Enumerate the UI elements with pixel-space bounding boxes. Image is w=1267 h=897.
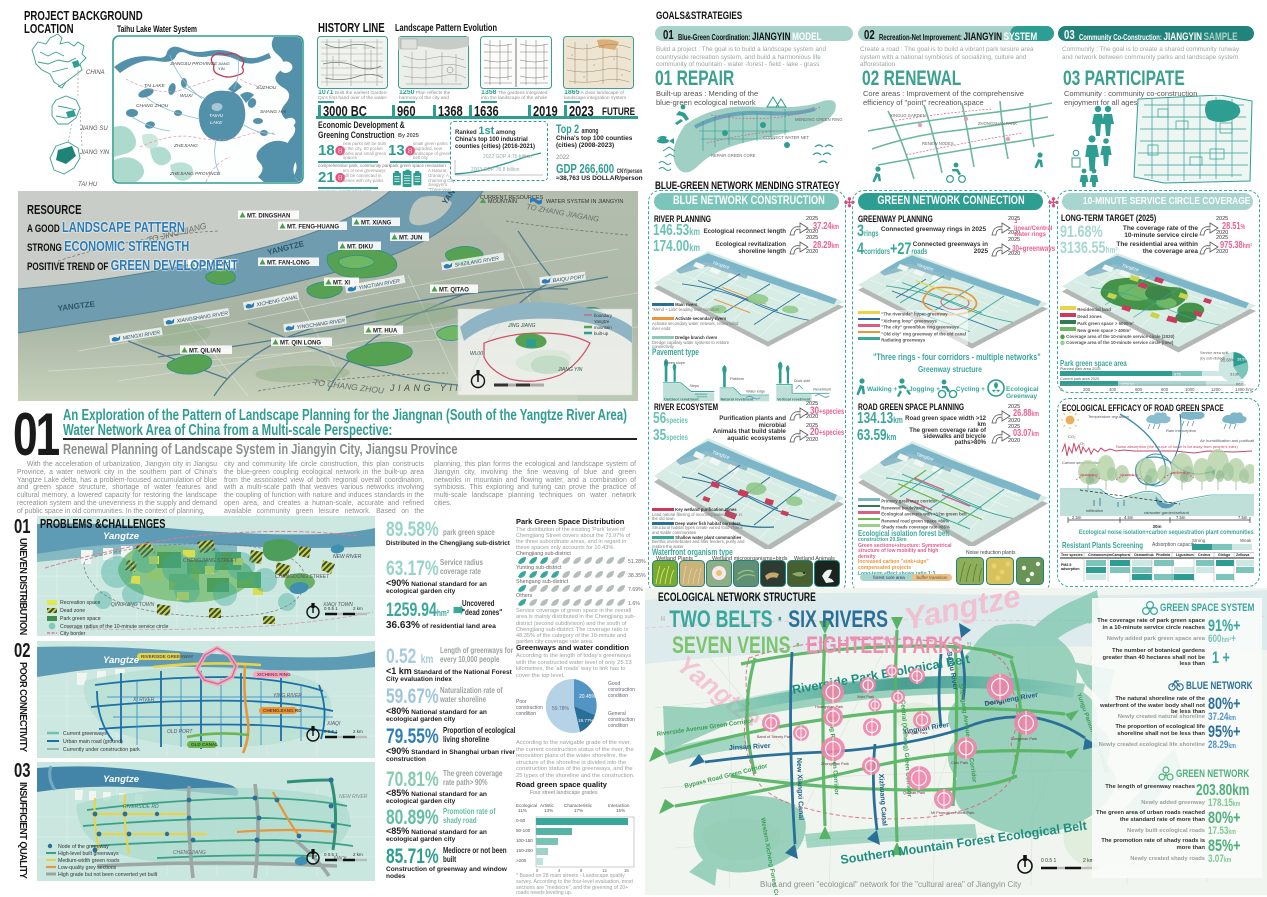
svg-text:Zhongshan Park: Zhongshan Park bbox=[821, 762, 849, 766]
svg-text:Noise reduction plants: Noise reduction plants bbox=[966, 550, 1016, 556]
svg-text:Mt Promotion Forest Park: Mt Promotion Forest Park bbox=[931, 811, 974, 815]
svg-text:Recreation space: Recreation space bbox=[60, 600, 100, 606]
svg-text:Camphora: Camphora bbox=[1112, 553, 1131, 557]
svg-text:Yangtze: Yangtze bbox=[103, 655, 140, 666]
svg-text:MT. JUN: MT. JUN bbox=[399, 236, 422, 242]
svg-text:Ginkgo: Ginkgo bbox=[1218, 553, 1231, 557]
svg-text:Revetment: Revetment bbox=[813, 388, 831, 392]
svg-text:XI RIVER: XI RIVER bbox=[132, 697, 155, 703]
svg-text:MOUNTAIN: MOUNTAIN bbox=[488, 199, 517, 205]
svg-text:Qushan Park: Qushan Park bbox=[903, 791, 925, 795]
svg-text:YING RIVER: YING RIVER bbox=[273, 693, 302, 699]
svg-text:2.5m: 2.5m bbox=[1072, 515, 1082, 520]
svg-text:Node of the greenway: Node of the greenway bbox=[58, 844, 109, 850]
svg-text:Band of Twenty Park: Band of Twenty Park bbox=[757, 735, 792, 739]
svg-text:800: 800 bbox=[1161, 387, 1169, 392]
svg-text:0-50: 0-50 bbox=[516, 818, 526, 823]
svg-text:Jogging +: Jogging + bbox=[909, 386, 940, 393]
svg-text:7.5m: 7.5m bbox=[1238, 515, 1248, 520]
svg-text:ZHEJIANG: ZHEJIANG bbox=[173, 143, 198, 149]
svg-text:Low-quality grey sections: Low-quality grey sections bbox=[58, 865, 117, 871]
svg-text:0 0.5 1: 0 0.5 1 bbox=[324, 606, 338, 611]
svg-text:Civic Park: Civic Park bbox=[951, 761, 968, 765]
svg-text:OLD CANAL: OLD CANAL bbox=[191, 742, 218, 747]
svg-text:Natural revetment: Natural revetment bbox=[720, 396, 754, 401]
svg-text:Currently under construction p: Currently under construction park bbox=[63, 747, 140, 753]
svg-text:Current greenways: Current greenways bbox=[63, 731, 107, 737]
svg-text:17%: 17% bbox=[574, 808, 583, 813]
svg-text:Noise absorption (the source o: Noise absorption (the source of noise is… bbox=[1116, 444, 1238, 449]
svg-text:Huangshan Park: Huangshan Park bbox=[815, 705, 843, 709]
svg-text:0: 0 bbox=[1060, 387, 1063, 392]
svg-text:Dead zone: Dead zone bbox=[60, 608, 85, 614]
svg-text:SUZHOU: SUZHOU bbox=[256, 85, 277, 91]
svg-text:MT. HUA: MT. HUA bbox=[373, 329, 398, 335]
svg-text:19.77%: 19.77% bbox=[578, 718, 594, 723]
svg-text:QINGYANG TOWN: QINGYANG TOWN bbox=[111, 602, 155, 608]
svg-text:built-up: built-up bbox=[594, 331, 609, 336]
svg-text:CHENGJIANG: CHENGJIANG bbox=[173, 850, 206, 856]
svg-text:JIANG SU: JIANG SU bbox=[79, 126, 108, 132]
svg-text:Yunting sub-district: Yunting sub-district bbox=[516, 565, 562, 571]
svg-text:RIVERSIDE GREENWAY: RIVERSIDE GREENWAY bbox=[141, 654, 193, 659]
svg-text:3136: 3136 bbox=[1230, 371, 1240, 376]
svg-text:JIANG YIN: JIANG YIN bbox=[557, 367, 583, 373]
svg-text:Coverage radius of the 10-minu: Coverage radius of the 10-minute service… bbox=[60, 624, 169, 630]
svg-text:mountain: mountain bbox=[594, 325, 612, 330]
svg-text:11%: 11% bbox=[518, 808, 527, 813]
svg-text:>200: >200 bbox=[516, 858, 527, 863]
svg-text:infiltration: infiltration bbox=[1086, 508, 1103, 513]
svg-text:Service area split: Service area split bbox=[1200, 351, 1228, 355]
svg-text:Xishi Park: Xishi Park bbox=[857, 695, 874, 699]
svg-text:13%: 13% bbox=[544, 808, 553, 813]
svg-text:O₂: O₂ bbox=[1080, 441, 1085, 446]
svg-text:High-level built greenways: High-level built greenways bbox=[58, 851, 119, 857]
svg-text:Cinnamomum: Cinnamomum bbox=[1088, 553, 1112, 557]
svg-text:City border: City border bbox=[60, 631, 86, 636]
svg-text:2 km: 2 km bbox=[353, 729, 363, 734]
svg-text:XIAQI: XIAQI bbox=[326, 721, 341, 727]
svg-text:MENDING GREEN RING: MENDING GREEN RING bbox=[795, 117, 842, 122]
svg-text:Zelkova: Zelkova bbox=[1236, 553, 1250, 557]
svg-text:Outdoor revetment: Outdoor revetment bbox=[664, 396, 700, 401]
svg-text:Walking +: Walking + bbox=[867, 386, 897, 393]
svg-text:Current park area 2020: Current park area 2020 bbox=[1060, 377, 1099, 381]
svg-text:JING JIANG: JING JIANG bbox=[507, 323, 536, 329]
svg-text:ZHEJIANG PROVINCE: ZHEJIANG PROVINCE bbox=[169, 171, 221, 177]
svg-text:Yangtze: Yangtze bbox=[103, 774, 140, 785]
svg-text:Green slope: Green slope bbox=[665, 361, 685, 365]
svg-text:condition: condition bbox=[608, 693, 628, 699]
svg-text:⌂: ⌂ bbox=[583, 75, 585, 79]
svg-text:51.28%: 51.28% bbox=[628, 559, 646, 565]
svg-text:0 0.5 1: 0 0.5 1 bbox=[324, 729, 338, 734]
svg-text:TAIHU: TAIHU bbox=[209, 113, 224, 119]
svg-text:(by sub-district): (by sub-district) bbox=[1200, 357, 1225, 361]
svg-text:CHENGJIANG STREET: CHENGJIANG STREET bbox=[183, 558, 238, 564]
svg-text:Photinia: Photinia bbox=[1156, 553, 1171, 557]
svg-text:400: 400 bbox=[1109, 387, 1117, 392]
svg-text:⌂: ⌂ bbox=[621, 73, 623, 77]
svg-text:0 0.5 1: 0 0.5 1 bbox=[324, 852, 338, 857]
svg-text:Dongshan Park: Dongshan Park bbox=[1011, 737, 1037, 741]
svg-text:2 km: 2 km bbox=[353, 606, 363, 611]
svg-text:Cedrus: Cedrus bbox=[1198, 553, 1210, 557]
svg-text:MT. QIN LONG: MT. QIN LONG bbox=[280, 341, 321, 347]
svg-text:Tree species: Tree species bbox=[1061, 553, 1083, 557]
svg-text:absorption: absorption bbox=[1080, 473, 1098, 477]
svg-text:ZHONGSHAN PARK: ZHONGSHAN PARK bbox=[978, 121, 1017, 126]
svg-text:XICHENG RING: XICHENG RING bbox=[257, 672, 291, 677]
svg-text:7.69%: 7.69% bbox=[628, 587, 643, 593]
svg-text:Platform: Platform bbox=[730, 377, 744, 381]
svg-text:0 0.5 1: 0 0.5 1 bbox=[1041, 858, 1057, 864]
svg-text:28.5%: 28.5% bbox=[1237, 358, 1248, 362]
svg-text:15%: 15% bbox=[616, 808, 625, 813]
svg-text:Medium-width green roads: Medium-width green roads bbox=[58, 858, 120, 864]
svg-text:1200: 1200 bbox=[1211, 387, 1221, 392]
svg-text:SHANG HAI: SHANG HAI bbox=[260, 109, 287, 115]
svg-text:MT. QILIAN: MT. QILIAN bbox=[189, 349, 221, 355]
svg-text:absorption: absorption bbox=[1172, 471, 1190, 475]
svg-text:NEW RIVER: NEW RIVER bbox=[339, 794, 368, 800]
svg-text:Steps: Steps bbox=[690, 384, 700, 388]
svg-text:JIANG YIN: JIANG YIN bbox=[389, 383, 465, 393]
svg-text:2003 GDP 78.8 billion: 2003 GDP 78.8 billion bbox=[471, 167, 520, 173]
svg-text:CO₂: CO₂ bbox=[1068, 434, 1076, 439]
svg-text:⌂: ⌂ bbox=[593, 63, 595, 67]
svg-text:Yangtze Park: Yangtze Park bbox=[905, 731, 928, 735]
svg-text:condition: condition bbox=[608, 723, 628, 729]
svg-text:JIANG YIN: JIANG YIN bbox=[79, 150, 110, 156]
svg-text:WUXI: WUXI bbox=[180, 93, 193, 99]
svg-text:Park green space: Park green space bbox=[60, 616, 101, 622]
svg-text:condition: condition bbox=[516, 711, 536, 717]
svg-text:CHENGDONG STREET: CHENGDONG STREET bbox=[275, 574, 330, 580]
svg-text:Greenway: Greenway bbox=[1006, 393, 1037, 400]
svg-text:Forest Park: Forest Park bbox=[985, 701, 1005, 705]
svg-text:absorption: absorption bbox=[1120, 473, 1138, 477]
svg-text:High grade but not been conver: High grade but not been converted yet bu… bbox=[58, 872, 158, 878]
svg-text:NEW RIVER: NEW RIVER bbox=[333, 554, 362, 560]
svg-text:MT. DINGSHAN: MT. DINGSHAN bbox=[247, 214, 290, 220]
svg-text:38.35%: 38.35% bbox=[628, 573, 646, 579]
svg-text:XINGUO GARDEN: XINGUO GARDEN bbox=[890, 113, 926, 118]
svg-text:1400: 1400 bbox=[1235, 387, 1245, 392]
svg-text:MT. FENG-HUANG: MT. FENG-HUANG bbox=[287, 225, 339, 231]
svg-text:WUXI: WUXI bbox=[470, 351, 484, 357]
svg-text:MT. QITAO: MT. QITAO bbox=[439, 288, 469, 294]
svg-text:Yangtze: Yangtze bbox=[103, 531, 140, 542]
svg-text:TAI LAKE: TAI LAKE bbox=[144, 83, 166, 89]
svg-text:4.5m: 4.5m bbox=[1124, 515, 1134, 520]
svg-text:975: 975 bbox=[1174, 371, 1181, 376]
svg-text:Air humidification and purific: Air humidification and purification bbox=[1200, 438, 1254, 443]
svg-text:59.78%: 59.78% bbox=[552, 706, 570, 712]
svg-text:JIANGSU PROVINCE: JIANGSU PROVINCE bbox=[169, 61, 218, 67]
svg-text:150-200: 150-200 bbox=[516, 848, 533, 853]
svg-text:Water edge: Water edge bbox=[746, 389, 765, 393]
svg-text:RENEW NODES: RENEW NODES bbox=[922, 141, 954, 146]
svg-text:Shengang sub-district: Shengang sub-district bbox=[516, 579, 569, 585]
svg-text:Cycling +: Cycling + bbox=[956, 386, 985, 393]
svg-text:600: 600 bbox=[1135, 387, 1143, 392]
svg-text:TAI HU: TAI HU bbox=[78, 182, 98, 188]
svg-text:20.45%: 20.45% bbox=[579, 694, 597, 700]
svg-text:CHANG ZHOU: CHANG ZHOU bbox=[136, 103, 169, 109]
svg-text:LAKE: LAKE bbox=[210, 120, 223, 126]
svg-text:YIN: YIN bbox=[218, 66, 225, 71]
svg-text:CONNECT WATER NET: CONNECT WATER NET bbox=[763, 135, 809, 140]
svg-text:Temperature regulation: Temperature regulation bbox=[1088, 414, 1129, 419]
svg-text:Osmanthus: Osmanthus bbox=[1134, 553, 1154, 557]
svg-text:CHENGJIANG RD: CHENGJIANG RD bbox=[263, 708, 302, 713]
svg-text:WATER SYSTEM IN JIANGYIN: WATER SYSTEM IN JIANGYIN bbox=[546, 199, 623, 205]
svg-text:Chengjiang sub-district: Chengjiang sub-district bbox=[516, 551, 571, 557]
svg-text:CHINA: CHINA bbox=[86, 70, 105, 76]
svg-text:1000: 1000 bbox=[1185, 387, 1195, 392]
svg-text:Others: Others bbox=[516, 593, 532, 599]
svg-text:RIVERSIDE RD: RIVERSIDE RD bbox=[123, 804, 159, 810]
svg-text:⌂: ⌂ bbox=[571, 53, 573, 57]
svg-text:7.5m: 7.5m bbox=[1176, 515, 1186, 520]
svg-text:Yangtze: Yangtze bbox=[594, 319, 610, 324]
svg-text:hm²: hm² bbox=[1246, 387, 1254, 392]
svg-text:OLD PORT: OLD PORT bbox=[167, 729, 193, 735]
svg-text:200: 200 bbox=[1083, 387, 1091, 392]
svg-text:Ecological: Ecological bbox=[1006, 386, 1039, 393]
svg-text:MT. DIKU: MT. DIKU bbox=[347, 245, 373, 251]
svg-text:⌂: ⌂ bbox=[613, 57, 615, 61]
svg-text:2 km: 2 km bbox=[353, 852, 363, 857]
svg-text:MT. XIANG: MT. XIANG bbox=[361, 221, 392, 227]
svg-text:Urban main road (ground): Urban main road (ground) bbox=[63, 739, 123, 745]
svg-text:Planned park area 2025: Planned park area 2025 bbox=[1060, 367, 1101, 371]
svg-text:Ligustrum: Ligustrum bbox=[1176, 553, 1194, 557]
svg-text:50-100: 50-100 bbox=[516, 828, 531, 833]
svg-text:2022 GDP 4.75 trillion: 2022 GDP 4.75 trillion bbox=[483, 154, 532, 160]
svg-text:Dock side: Dock side bbox=[794, 379, 810, 383]
svg-text:100-150: 100-150 bbox=[516, 838, 533, 843]
svg-text:boundary: boundary bbox=[594, 313, 613, 318]
svg-text:1.6%: 1.6% bbox=[628, 601, 640, 607]
svg-text:REPAIR GREEN CORE: REPAIR GREEN CORE bbox=[711, 153, 756, 158]
svg-text:adsorption: adsorption bbox=[1061, 567, 1080, 571]
